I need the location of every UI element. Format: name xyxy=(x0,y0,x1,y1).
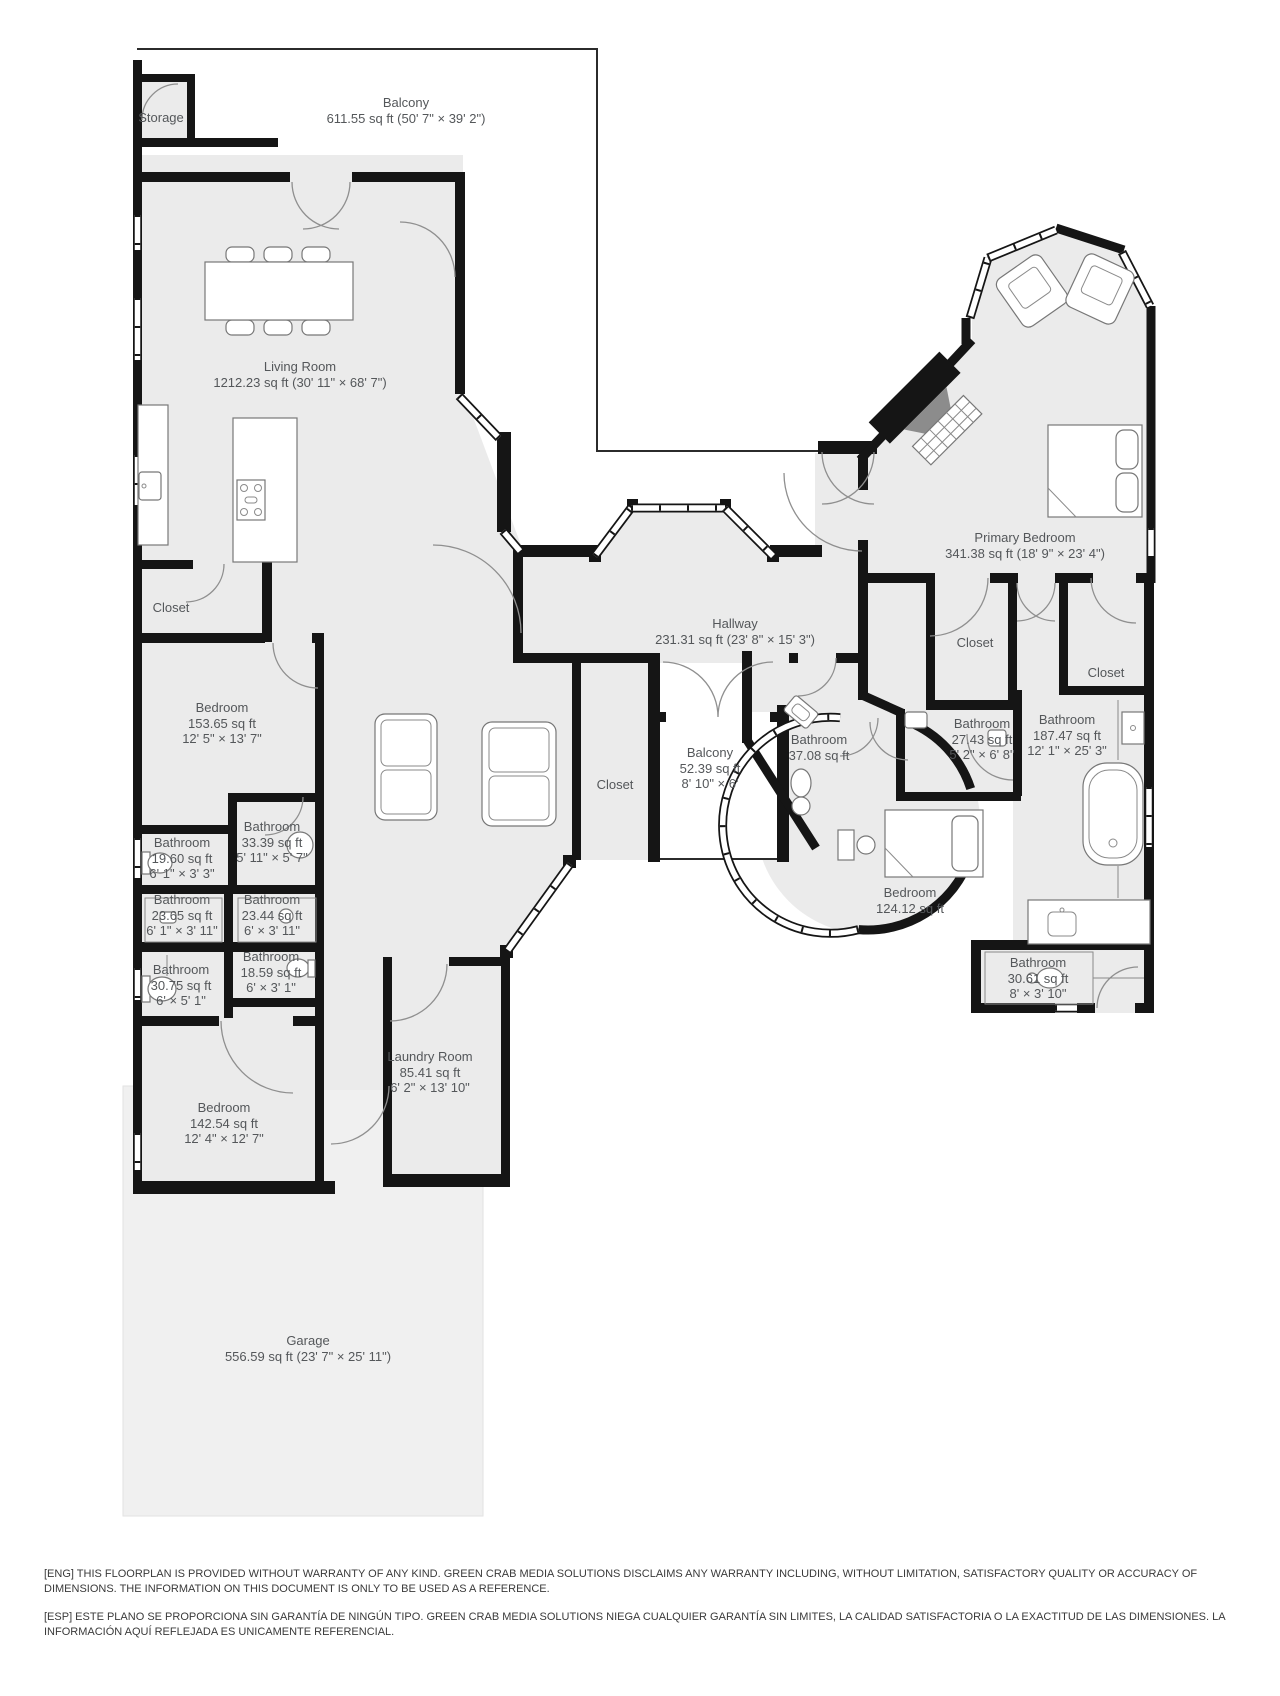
room-label-closet-primary-a: Closet xyxy=(957,635,994,651)
room-label-bathroom-18747: Bathroom 187.47 sq ft 12' 1" × 25' 3" xyxy=(1027,712,1107,759)
room-dims: 12' 5" × 13' 7" xyxy=(182,731,262,747)
room-name: Closet xyxy=(597,777,634,793)
room-name: Balcony xyxy=(680,745,741,761)
room-label-bathroom-2365: Bathroom 23.65 sq ft 6' 1" × 3' 11" xyxy=(146,892,217,939)
room-name: Bathroom xyxy=(241,949,302,965)
room-area: 124.12 sq ft xyxy=(876,901,944,917)
room-name: Primary Bedroom xyxy=(945,530,1105,546)
room-area: 37.08 sq ft xyxy=(789,748,850,764)
room-name: Bathroom xyxy=(149,835,214,851)
room-dims: 12' 1" × 25' 3" xyxy=(1027,743,1107,759)
room-dims: 6' × 3' 1" xyxy=(241,980,302,996)
bed-primary xyxy=(1048,425,1142,517)
room-area: 611.55 sq ft (50' 7" × 39' 2") xyxy=(327,111,486,127)
room-area: 18.59 sq ft xyxy=(241,965,302,981)
room-area: 27.43 sq ft xyxy=(949,732,1014,748)
room-name: Bathroom xyxy=(146,892,217,908)
room-area: 19.60 sq ft xyxy=(149,851,214,867)
room-name: Closet xyxy=(1088,665,1125,681)
sink xyxy=(905,712,927,728)
room-area: 85.41 sq ft xyxy=(387,1065,472,1081)
room-label-primary-bedroom: Primary Bedroom 341.38 sq ft (18' 9" × 2… xyxy=(945,530,1105,561)
room-label-bathroom-3061: Bathroom 30.61 sq ft 8' × 3' 10" xyxy=(1008,955,1069,1002)
floorplan-page: Storage Balcony 611.55 sq ft (50' 7" × 3… xyxy=(0,0,1280,1696)
room-dims: 12' 4" × 12' 7" xyxy=(184,1131,264,1147)
room-label-storage: Storage xyxy=(138,110,184,126)
room-label-bathroom-2344: Bathroom 23.44 sq ft 6' × 3' 11" xyxy=(242,892,303,939)
room-area: 153.65 sq ft xyxy=(182,716,262,732)
room-dims: 5' 11" × 5' 7" xyxy=(236,850,307,866)
room-dims: 5' 2" × 6' 8" xyxy=(949,747,1014,763)
room-label-closet-primary-b: Closet xyxy=(1088,665,1125,681)
room-area: 1212.23 sq ft (30' 11" × 68' 7") xyxy=(213,375,386,391)
room-name: Bathroom xyxy=(789,732,850,748)
room-label-laundry: Laundry Room 85.41 sq ft 6' 2" × 13' 10" xyxy=(387,1049,472,1096)
room-dims: 6' × 3' 11" xyxy=(242,923,303,939)
room-dims: 6' 1" × 3' 11" xyxy=(146,923,217,939)
room-name: Laundry Room xyxy=(387,1049,472,1065)
room-area: 23.44 sq ft xyxy=(242,908,303,924)
room-area: 30.75 sq ft xyxy=(151,978,212,994)
room-label-balcony-top: Balcony 611.55 sq ft (50' 7" × 39' 2") xyxy=(327,95,486,126)
bathtub xyxy=(1083,763,1143,865)
room-name: Bedroom xyxy=(876,885,944,901)
room-dims: 6' 1" × 3' 3" xyxy=(149,866,214,882)
room-dims: 8' × 3' 10" xyxy=(1008,986,1069,1002)
room-area: 23.65 sq ft xyxy=(146,908,217,924)
room-name: Bathroom xyxy=(151,962,212,978)
room-dims: 6' × 5' 1" xyxy=(151,993,212,1009)
room-label-bedroom-124: Bedroom 124.12 sq ft xyxy=(876,885,944,916)
room-area: 142.54 sq ft xyxy=(184,1116,264,1132)
room-label-bathroom-2743: Bathroom 27.43 sq ft 5' 2" × 6' 8" xyxy=(949,716,1014,763)
room-label-bathroom-1859: Bathroom 18.59 sq ft 6' × 3' 1" xyxy=(241,949,302,996)
room-label-living-room: Living Room 1212.23 sq ft (30' 11" × 68'… xyxy=(213,359,386,390)
room-area: 341.38 sq ft (18' 9" × 23' 4") xyxy=(945,546,1105,562)
room-name: Bathroom xyxy=(236,819,307,835)
room-dims: 8' 10" × 6' xyxy=(680,776,741,792)
room-name: Bathroom xyxy=(1008,955,1069,971)
room-name: Closet xyxy=(153,600,190,616)
room-label-bedroom-142: Bedroom 142.54 sq ft 12' 4" × 12' 7" xyxy=(184,1100,264,1147)
room-name: Bathroom xyxy=(242,892,303,908)
room-name: Bedroom xyxy=(182,700,262,716)
room-area: 33.39 sq ft xyxy=(236,835,307,851)
room-dims: 6' 2" × 13' 10" xyxy=(387,1080,472,1096)
room-label-closet-center: Closet xyxy=(597,777,634,793)
room-name: Bathroom xyxy=(1027,712,1107,728)
disclaimer-esp: [ESP] ESTE PLANO SE PROPORCIONA SIN GARA… xyxy=(44,1610,1244,1640)
room-area: 30.61 sq ft xyxy=(1008,971,1069,987)
room-area: 556.59 sq ft (23' 7" × 25' 11") xyxy=(225,1349,391,1365)
room-label-bathroom-1960: Bathroom 19.60 sq ft 6' 1" × 3' 3" xyxy=(149,835,214,882)
room-name: Living Room xyxy=(213,359,386,375)
disclaimer-eng: [ENG] THIS FLOORPLAN IS PROVIDED WITHOUT… xyxy=(44,1567,1244,1597)
room-name: Bedroom xyxy=(184,1100,264,1116)
room-label-bathroom-3708: Bathroom 37.08 sq ft xyxy=(789,732,850,763)
room-label-hallway: Hallway 231.31 sq ft (23' 8" × 15' 3") xyxy=(655,616,815,647)
room-area: 187.47 sq ft xyxy=(1027,728,1107,744)
room-name: Hallway xyxy=(655,616,815,632)
room-label-garage: Garage 556.59 sq ft (23' 7" × 25' 11") xyxy=(225,1333,391,1364)
room-name: Bathroom xyxy=(949,716,1014,732)
room-label-balcony-center: Balcony 52.39 sq ft 8' 10" × 6' xyxy=(680,745,741,792)
room-name: Balcony xyxy=(327,95,486,111)
room-name: Closet xyxy=(957,635,994,651)
room-area: 52.39 sq ft xyxy=(680,761,741,777)
room-label-bedroom-153: Bedroom 153.65 sq ft 12' 5" × 13' 7" xyxy=(182,700,262,747)
room-name: Storage xyxy=(138,110,184,126)
room-label-closet-left: Closet xyxy=(153,600,190,616)
room-name: Garage xyxy=(225,1333,391,1349)
room-label-bathroom-3339: Bathroom 33.39 sq ft 5' 11" × 5' 7" xyxy=(236,819,307,866)
room-area: 231.31 sq ft (23' 8" × 15' 3") xyxy=(655,632,815,648)
room-label-bathroom-3075: Bathroom 30.75 sq ft 6' × 5' 1" xyxy=(151,962,212,1009)
toilet xyxy=(791,769,811,815)
